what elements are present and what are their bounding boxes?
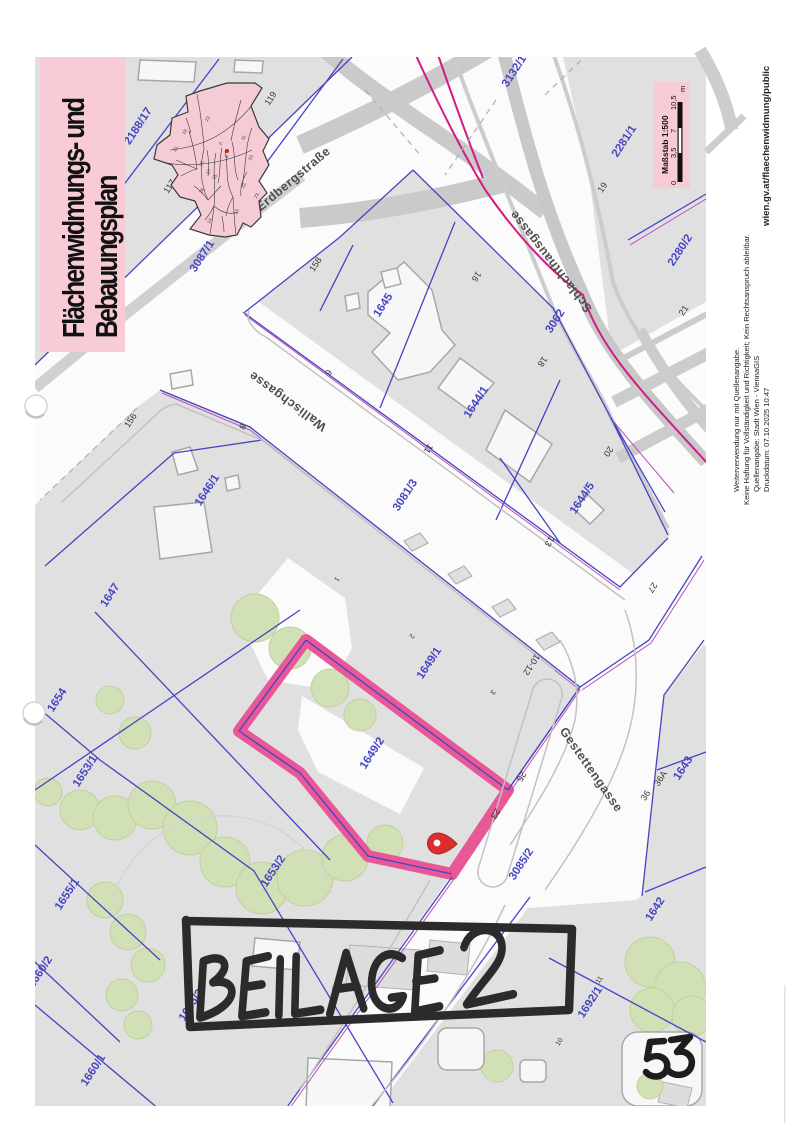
svg-text:7: 7 <box>669 129 678 133</box>
svg-text:Bebauungsplan: Bebauungsplan <box>90 175 124 338</box>
svg-text:0: 0 <box>669 181 678 185</box>
svg-text:Flächenwidmungs- und: Flächenwidmungs- und <box>57 98 91 338</box>
svg-text:Keine Haftung für Vollständigk: Keine Haftung für Vollständigkeit und Ri… <box>742 234 751 505</box>
svg-text:3,5: 3,5 <box>669 148 678 158</box>
svg-text:Weiterverwendung nur mit Quell: Weiterverwendung nur mit Quellenangabe. <box>732 348 741 492</box>
svg-text:Quellenangabe: Stadt Wien - Vi: Quellenangabe: Stadt Wien - ViennaGIS <box>752 356 761 492</box>
svg-text:10,5: 10,5 <box>669 95 678 110</box>
svg-text:m: m <box>678 86 687 92</box>
svg-text:Maßstab 1:500: Maßstab 1:500 <box>660 115 670 174</box>
svg-text:wien.gv.at/flaechenwidmung/pub: wien.gv.at/flaechenwidmung/public <box>761 65 772 227</box>
svg-text:Druckdatum: 07.10.2025 10:47: Druckdatum: 07.10.2025 10:47 <box>762 388 771 492</box>
